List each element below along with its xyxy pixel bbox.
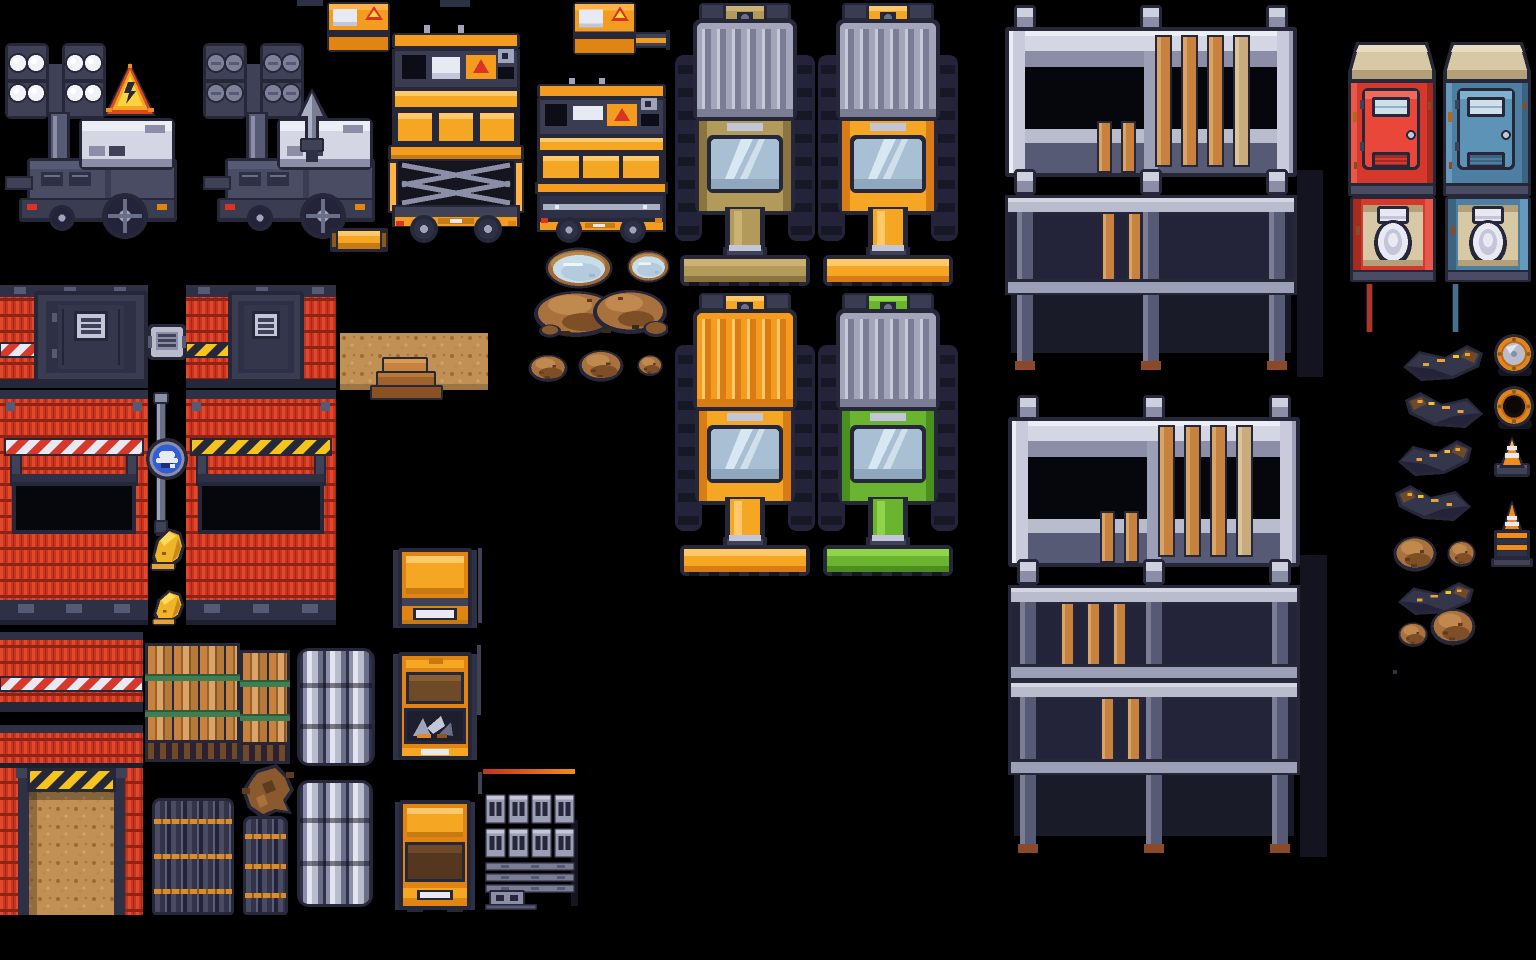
spritesheet-canvas [0, 0, 1536, 960]
hard-hat-sign [146, 436, 188, 482]
keypad-tile [148, 322, 186, 362]
hard-hat [150, 585, 187, 628]
porta-potty-red-front [1348, 42, 1436, 202]
scaffold-shadow [1300, 555, 1327, 857]
container-wall-window-right [186, 390, 336, 625]
rebar-rod [478, 548, 482, 623]
container-wall-strip [0, 632, 143, 712]
bulldozer-tan [675, 3, 815, 286]
garage-entrance [0, 768, 143, 915]
dirt-mound [1398, 620, 1428, 648]
scissor-lift-lowered [535, 78, 668, 245]
timber-bundle [240, 650, 290, 764]
porta-potty-blue-front [1443, 42, 1531, 202]
barrel-open [1493, 385, 1536, 431]
hard-hat [148, 522, 188, 574]
debris-streak [1405, 392, 1483, 428]
orange-crate-tools [393, 652, 477, 762]
porta-potty-red-open [1350, 196, 1436, 284]
dirt-mound-double [532, 285, 668, 338]
traffic-cone [1492, 434, 1532, 479]
scissor-lift-extended [388, 25, 524, 245]
bulldozer-orange-cab [818, 3, 958, 286]
generator-box [327, 0, 390, 52]
hazard-triangle-sign [104, 62, 156, 118]
lightning-spike [292, 88, 332, 162]
tree-stump-roots [242, 764, 294, 819]
boom-arm [634, 30, 670, 50]
dirt-mound [528, 352, 568, 383]
debris-streak [1403, 345, 1483, 381]
top-fragment [440, 0, 470, 7]
cinder-block-stack [481, 790, 578, 910]
bulldozer-green [818, 293, 958, 576]
light-tower-off [203, 40, 379, 240]
container-wall-door-right [186, 285, 336, 388]
cone-pedestal [1490, 500, 1534, 567]
scaffold-shadow [1297, 170, 1323, 377]
paint-fleck [1393, 670, 1397, 674]
porta-potty-blue-open [1445, 196, 1531, 284]
pipe-stack [297, 780, 373, 907]
rebar-bundle [152, 798, 234, 915]
barrel-closed [1493, 333, 1536, 378]
orange-beam [330, 228, 388, 252]
top-fragment [297, 0, 323, 6]
puddle [545, 247, 613, 289]
rebar-rod [477, 645, 481, 715]
container-wall-window-left [0, 390, 148, 625]
rebar-bundle [243, 816, 288, 915]
drain-hose-blue [1452, 284, 1459, 332]
dirt-mound [578, 347, 624, 383]
wood-steps [370, 355, 443, 400]
orange-crate-drawer [395, 800, 475, 912]
bulldozer-orange [675, 293, 815, 576]
marking-rod [483, 769, 575, 774]
orange-crate-closed [393, 548, 477, 630]
dirt-mound [1393, 533, 1437, 573]
timber-bundle [145, 643, 240, 762]
container-wall-door-left [0, 285, 148, 388]
scaffold-2-level [1005, 5, 1297, 377]
dirt-mound [1430, 605, 1476, 647]
dirt-mound [637, 353, 663, 377]
container-wall-strip [0, 725, 143, 768]
puddle [627, 250, 670, 283]
dirt-mound [1447, 538, 1476, 568]
scaffold-3-level [1008, 395, 1300, 860]
generator-box [573, 0, 636, 55]
debris-streak [1395, 485, 1471, 521]
drain-hose-red [1366, 284, 1373, 332]
pipe-stack [297, 648, 375, 766]
debris-streak [1398, 440, 1472, 476]
